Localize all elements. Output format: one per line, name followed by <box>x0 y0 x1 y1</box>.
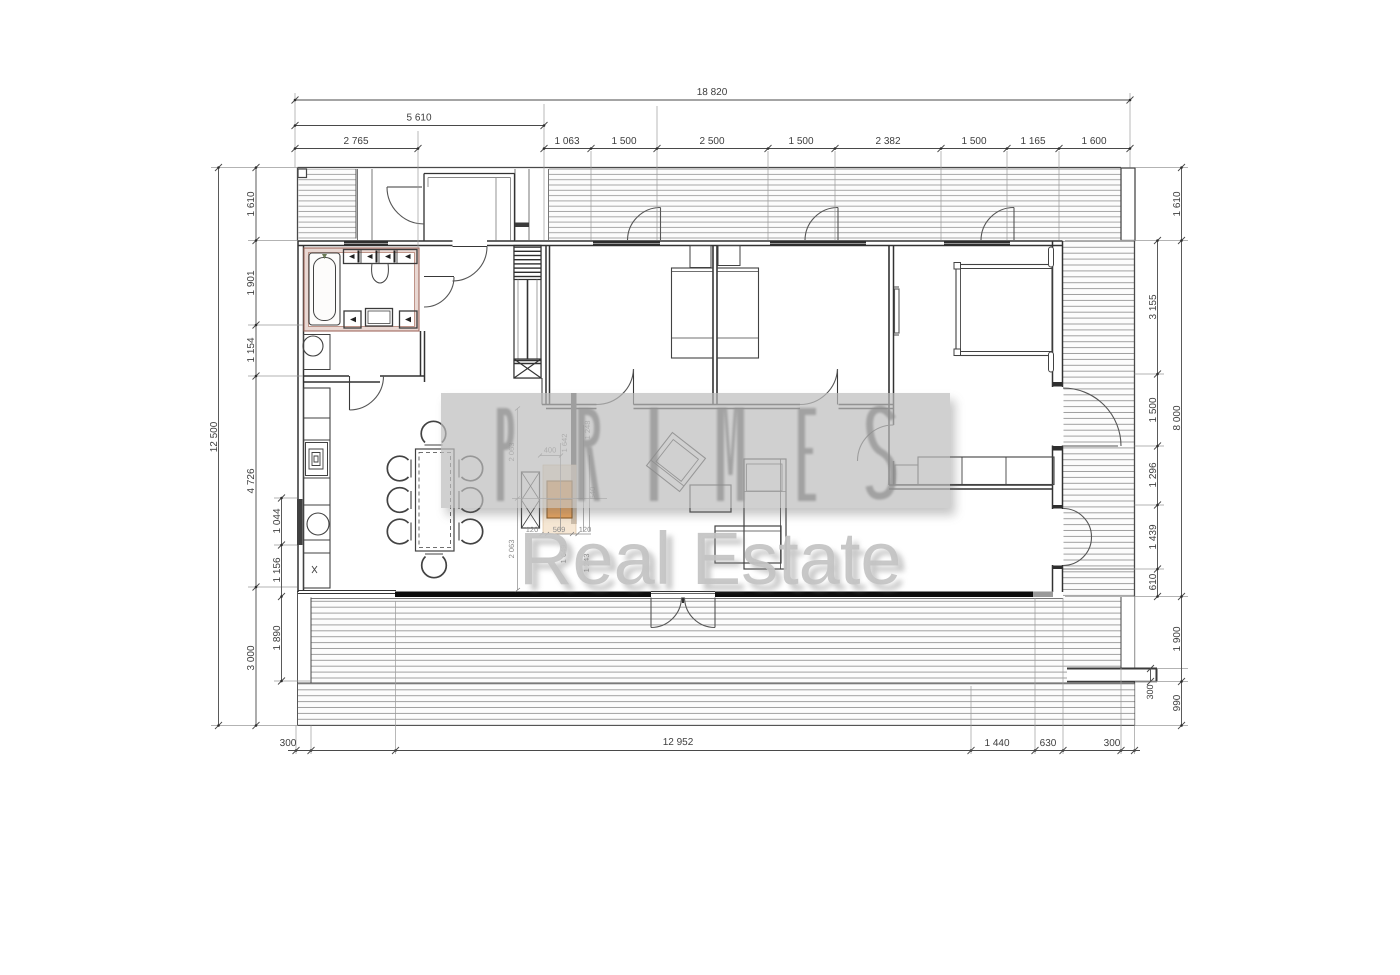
svg-text:1 500: 1 500 <box>611 136 636 147</box>
svg-text:1 901: 1 901 <box>246 270 257 295</box>
svg-text:1 296: 1 296 <box>1148 462 1159 487</box>
svg-text:1 500: 1 500 <box>961 136 986 147</box>
svg-text:8 000: 8 000 <box>1172 405 1183 430</box>
svg-text:Real Estate: Real Estate <box>519 517 902 600</box>
svg-text:1 439: 1 439 <box>1148 524 1159 549</box>
svg-text:4 726: 4 726 <box>246 468 257 493</box>
svg-text:2 765: 2 765 <box>343 136 368 147</box>
svg-text:18 820: 18 820 <box>697 87 728 98</box>
svg-text:300: 300 <box>280 738 297 749</box>
svg-text:1 890: 1 890 <box>272 625 283 650</box>
svg-text:1 500: 1 500 <box>788 136 813 147</box>
svg-text:1 610: 1 610 <box>1172 191 1183 216</box>
svg-text:3 155: 3 155 <box>1148 294 1159 319</box>
svg-text:1 165: 1 165 <box>1020 136 1045 147</box>
svg-text:610: 610 <box>1148 573 1159 590</box>
svg-text:300: 300 <box>1145 684 1155 699</box>
svg-text:2 382: 2 382 <box>875 136 900 147</box>
svg-text:1 500: 1 500 <box>1148 397 1159 422</box>
svg-text:1 154: 1 154 <box>246 337 257 362</box>
svg-text:5 610: 5 610 <box>406 113 431 124</box>
svg-text:300: 300 <box>1104 738 1121 749</box>
svg-text:12 952: 12 952 <box>663 737 694 748</box>
svg-text:630: 630 <box>1040 738 1057 749</box>
svg-text:1 900: 1 900 <box>1172 626 1183 651</box>
svg-text:1 044: 1 044 <box>272 508 283 533</box>
svg-text:1 440: 1 440 <box>984 738 1009 749</box>
svg-text:1 063: 1 063 <box>554 136 579 147</box>
svg-text:990: 990 <box>1172 694 1183 711</box>
svg-text:1 600: 1 600 <box>1081 136 1106 147</box>
svg-text:12 500: 12 500 <box>209 421 220 452</box>
svg-text:2 500: 2 500 <box>699 136 724 147</box>
svg-text:1 156: 1 156 <box>272 557 283 582</box>
svg-text:2 063: 2 063 <box>507 540 516 559</box>
svg-text:1 610: 1 610 <box>246 191 257 216</box>
svg-text:3 000: 3 000 <box>246 645 257 670</box>
